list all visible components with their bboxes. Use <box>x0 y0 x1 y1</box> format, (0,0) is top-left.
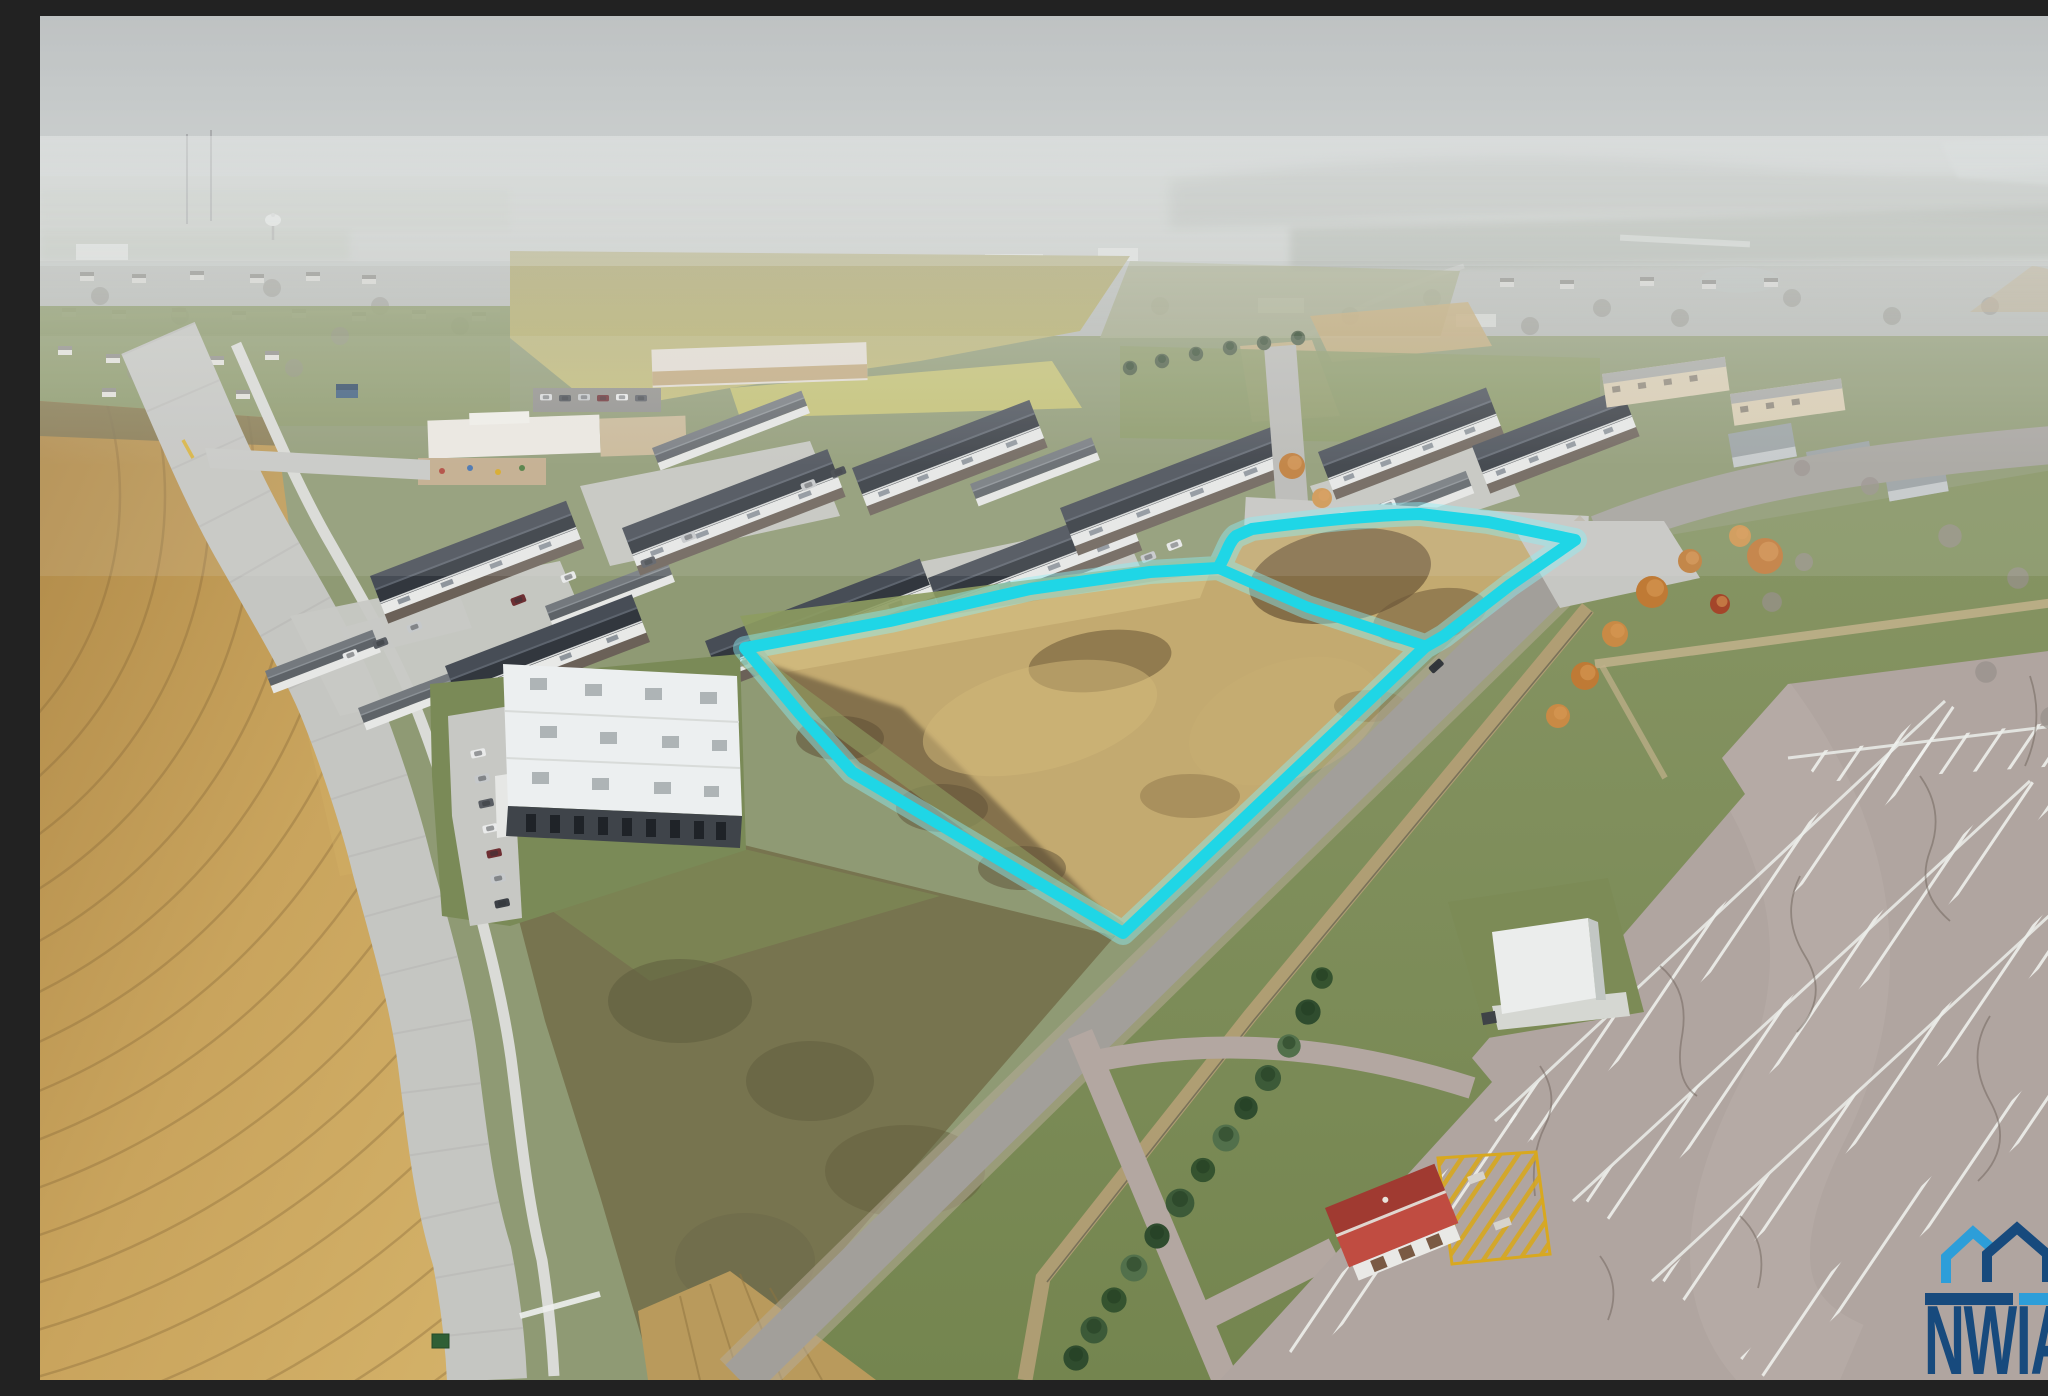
yellow-hatch-zone <box>1438 1152 1550 1264</box>
brand-wordmark: NWIA <box>1924 1284 2048 1380</box>
utility-box <box>432 1334 449 1348</box>
atmospheric-haze <box>40 16 2048 576</box>
commercial-building <box>495 664 742 848</box>
aerial-photo: NWIA <box>40 16 2048 1380</box>
red-maple <box>1710 594 1730 614</box>
aerial-photo-canvas: NWIA <box>40 16 2048 1380</box>
